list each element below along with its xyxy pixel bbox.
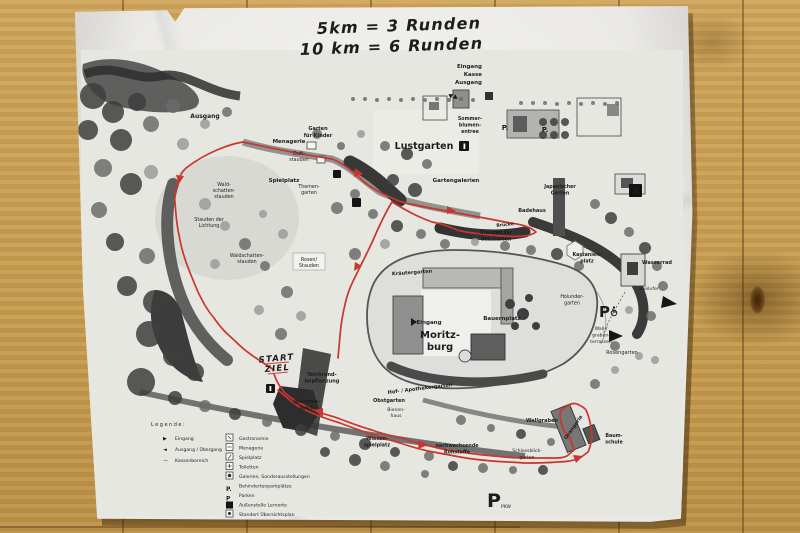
label-ausgang: Ausgang [190, 113, 219, 120]
legend-gastronomie: Gastronomie [239, 436, 269, 442]
label-schlossblickgarten: Schlossblick- [512, 448, 542, 454]
tree-blob [350, 189, 360, 199]
tree-blob [94, 159, 112, 177]
tree-blob [120, 173, 142, 195]
label-johannisteich: teich [300, 406, 314, 412]
label-wallgraben-terrassen: graben- [592, 333, 610, 339]
tree-blob [143, 290, 167, 314]
tree-blob [295, 424, 307, 436]
tree-blob [349, 454, 361, 466]
legend-menagerie: Menagerie [239, 446, 263, 452]
tree-blob [651, 356, 659, 364]
label-japanischer-garten: Garten [551, 191, 570, 197]
legend-kasse-icon: — [163, 458, 168, 464]
tree-blob [375, 98, 379, 102]
tree-blob [128, 93, 146, 111]
tree-blob [380, 141, 390, 151]
label-stauden-lichtung: Lichtung [199, 223, 220, 229]
tree-blob [531, 101, 535, 105]
legend-aussenstelle: Außenstelle Lernorte [239, 503, 287, 509]
label-wasserrad: Wasserrad [642, 260, 672, 266]
label-waldschatten: stauden [214, 194, 233, 200]
tree-blob [222, 107, 232, 117]
entrance-sign-line3: Ausgang [455, 80, 482, 86]
label-wallgraben-terrassen: terrassen [590, 339, 612, 345]
pkw-parking-sub: PKW [501, 504, 512, 510]
tree-blob [543, 101, 547, 105]
label-rosen-stauden: Stauden [299, 263, 319, 269]
tree-blob [471, 98, 475, 102]
label-stauden-garten: Stauden für [480, 230, 513, 236]
tree-blob [416, 229, 426, 239]
label-sommerblumen: Sommer- [458, 116, 482, 122]
label-wallgraben: Wallgraben [526, 418, 559, 424]
legend-p-disabled-icon: P. [226, 486, 232, 493]
tree-blob [349, 248, 361, 260]
label-duftstauden: Duft- [293, 151, 305, 157]
tree-blob [526, 245, 536, 255]
legend-standort: Standort Übersichtsplan [239, 511, 295, 518]
tree-blob [459, 97, 463, 101]
label-bienenhaus: haus [390, 413, 402, 419]
tree-blob [590, 379, 600, 389]
photo-scene: 5km = 3 Runden 10 km = 6 Runden START ZI… [0, 0, 800, 533]
tree-blob [421, 470, 429, 478]
label-wiesenspielplatz: spielplatz [364, 443, 390, 449]
wood-knot [750, 286, 765, 314]
tree-blob [127, 368, 155, 396]
legend-a-icon: A [228, 503, 232, 509]
label-japanischer-garten: Japanischer [543, 184, 576, 190]
label-waldschatten-sued: Waldschatten- [230, 253, 265, 259]
tree-blob [399, 98, 403, 102]
tree-blob [380, 461, 390, 471]
tree-blob [390, 447, 400, 457]
tree-blob [177, 138, 189, 150]
label-bienenhaus: Bienen- [387, 407, 405, 413]
tree-blob [500, 241, 510, 251]
label-moritzburg: Moritz- [420, 330, 460, 341]
label-stauden-garten: den Garten [481, 237, 512, 243]
label-schloss-eingang: Eingang [416, 320, 441, 326]
tree-blob [555, 102, 559, 106]
tree-blob [408, 183, 422, 197]
tree-blob [357, 130, 365, 138]
legend-parken: Parken [239, 493, 255, 499]
legend-entrance-label: Eingang [175, 436, 194, 442]
tree-blob [624, 227, 634, 237]
letter-a: A [632, 187, 639, 196]
label-duftstauden: stauden [289, 157, 308, 163]
disabled-parking-p: P [599, 303, 610, 321]
tree-blob [387, 97, 391, 101]
tree-blob [320, 447, 330, 457]
label-holundergarten: Holunder- [560, 294, 584, 300]
label-teichrand: Teichrand- [307, 372, 336, 378]
tree-blob [579, 102, 583, 106]
label-schlossblickgarten: garten [519, 455, 534, 461]
tree-blob [163, 346, 183, 366]
tree-blob [550, 131, 558, 139]
tree-blob [139, 248, 155, 264]
tree-blob [547, 438, 555, 446]
tree-blob [625, 306, 633, 314]
legend-exit-arrow-icon: ◄ [163, 447, 167, 453]
tree-blob [78, 120, 98, 140]
tree-blob [351, 97, 355, 101]
label-nachwachsende: Rohstoffe [444, 450, 471, 456]
tree-blob [646, 311, 656, 321]
tree-blob [567, 101, 571, 105]
tree-blob [391, 220, 403, 232]
label-waldschatten-sued: stauden [237, 259, 256, 265]
tree-blob [550, 118, 558, 126]
legend-behindertenparkplaetze: Behindertenparkplätze [239, 484, 292, 490]
label-sommerblumen: entree [461, 129, 480, 135]
legend-galerien: Galerien, Sonderausstellungen [239, 474, 310, 480]
label-lustgarten: Lustgarten [395, 141, 454, 152]
tree-blob [516, 429, 526, 439]
tree-blob [281, 286, 293, 298]
tree-blob [538, 465, 548, 475]
tree-blob [368, 209, 378, 219]
tree-blob [658, 281, 668, 291]
tree-blob [80, 83, 106, 109]
label-themengarten: garten [301, 190, 317, 196]
tree-blob [456, 415, 466, 425]
tree-blob [296, 311, 306, 321]
label-menagerie: Menagerie [273, 139, 306, 145]
tree-blob [363, 97, 367, 101]
legend-spielplatz: Spielplatz [239, 455, 262, 461]
label-rosengarten: Rosengarten [606, 350, 638, 356]
tree-blob [91, 202, 107, 218]
tree-blob [590, 199, 600, 209]
tree-blob [639, 242, 651, 254]
tree-blob [186, 363, 204, 381]
tree-blob [423, 98, 427, 102]
tree-blob [591, 101, 595, 105]
castle-tower [459, 350, 471, 362]
tree-blob [337, 142, 345, 150]
tree-blob [166, 99, 180, 113]
tree-blob [615, 101, 619, 105]
tree-blob [106, 233, 124, 251]
label-rosen-stauden: Rosen/ [301, 257, 318, 263]
label-obstgarten: Obstgarten [373, 398, 405, 404]
label-wiesenspielplatz: Wiesen- [366, 436, 388, 442]
tree-blob [605, 212, 617, 224]
label-waldschatten: schatten- [213, 188, 236, 194]
tree-blob [331, 202, 343, 214]
tree-blob [551, 248, 563, 260]
tree-blob [487, 424, 495, 432]
entrance-sign-line1: Eingang [457, 64, 482, 70]
legend-kasse-label: Kassenbereich [175, 458, 208, 464]
label-sommerblumen: blumen- [459, 123, 481, 129]
entrance-sign-line2: Kasse [464, 72, 483, 78]
legend-toiletten: Toiletten [238, 465, 259, 471]
tree-blob [262, 417, 272, 427]
tree-blob [259, 210, 267, 218]
label-kastanienplatz: Kastanien- [572, 252, 601, 258]
tree-blob [448, 461, 458, 471]
tree-blob [387, 174, 399, 186]
tree-blob [200, 119, 210, 129]
tree-blob [539, 118, 547, 126]
label-spielplatz: Spielplatz [269, 178, 300, 184]
tree-blob [561, 118, 569, 126]
tree-blob [110, 129, 132, 151]
label-garten-kinder: Garten [308, 126, 328, 132]
tree-blob [478, 463, 488, 473]
label-nachwachsende: nachwachsende [435, 443, 479, 449]
tree-blob [561, 131, 569, 139]
tree-blob [239, 238, 251, 250]
tree-blob [411, 97, 415, 101]
tree-blob [278, 229, 288, 239]
label-kastanienplatz: platz [580, 259, 594, 265]
legend-p-icon: P [226, 496, 231, 503]
paper-map: 5km = 3 Runden 10 km = 6 Runden START ZI… [55, 4, 695, 526]
tree-blob [603, 102, 607, 106]
label-baumschule: schule [605, 440, 623, 446]
tree-blob [260, 261, 270, 271]
tree-blob [611, 366, 619, 374]
tree-blob [330, 431, 340, 441]
label-garten-kinder: für Kinder [304, 133, 333, 139]
tree-blob [210, 259, 220, 269]
tree-blob [275, 328, 287, 340]
label-badehaus: Badehaus [518, 208, 546, 214]
tree-blob [199, 400, 211, 412]
label-wallgraben-terrassen: Wall-/ [595, 326, 608, 332]
legend-entrance-arrow-icon: ▶ [163, 436, 167, 442]
tree-blob [102, 101, 124, 123]
tree-blob [136, 321, 162, 347]
tree-blob [422, 159, 432, 169]
label-stauden-lichtung: Stauden der [194, 217, 223, 223]
label-moritzburg: burg [427, 342, 453, 353]
tree-blob [117, 276, 137, 296]
parking-p-small: P. [542, 126, 549, 134]
label-themengarten: Themen- [297, 184, 320, 190]
park-map: 5km = 3 Runden 10 km = 6 Runden START ZI… [55, 4, 695, 526]
tree-blob [509, 466, 517, 474]
parking-p-small: P. [502, 124, 509, 132]
tree-blob [380, 239, 390, 249]
label-teichrand: bepflanzung [305, 379, 340, 385]
tree-blob [144, 165, 158, 179]
label-baumschule: Baum- [605, 433, 622, 439]
label-gartengalerien: Gartengalerien [433, 178, 480, 184]
label-johannisteich: Johannis- [293, 399, 320, 405]
label-waldschatten: Wald- [217, 182, 231, 188]
tree-blob [143, 116, 159, 132]
pkw-parking-p: P [487, 490, 501, 512]
label-steilufer: Steilufer [639, 286, 658, 292]
label-holundergarten: garten [564, 301, 580, 307]
legend-exit-label: Ausgang / Übergang [175, 446, 222, 453]
entrance-markers: ▼▲ [448, 93, 458, 100]
tree-blob [435, 97, 439, 101]
tree-blob [471, 238, 479, 246]
tree-blob [440, 239, 450, 249]
tree-blob [254, 305, 264, 315]
tree-blob [168, 391, 182, 405]
tree-blob [199, 198, 211, 210]
label-bauernplatz: Bauernplatz [483, 316, 521, 322]
legend-title: Legende: [151, 422, 186, 428]
tree-blob [519, 101, 523, 105]
tree-blob [229, 408, 241, 420]
